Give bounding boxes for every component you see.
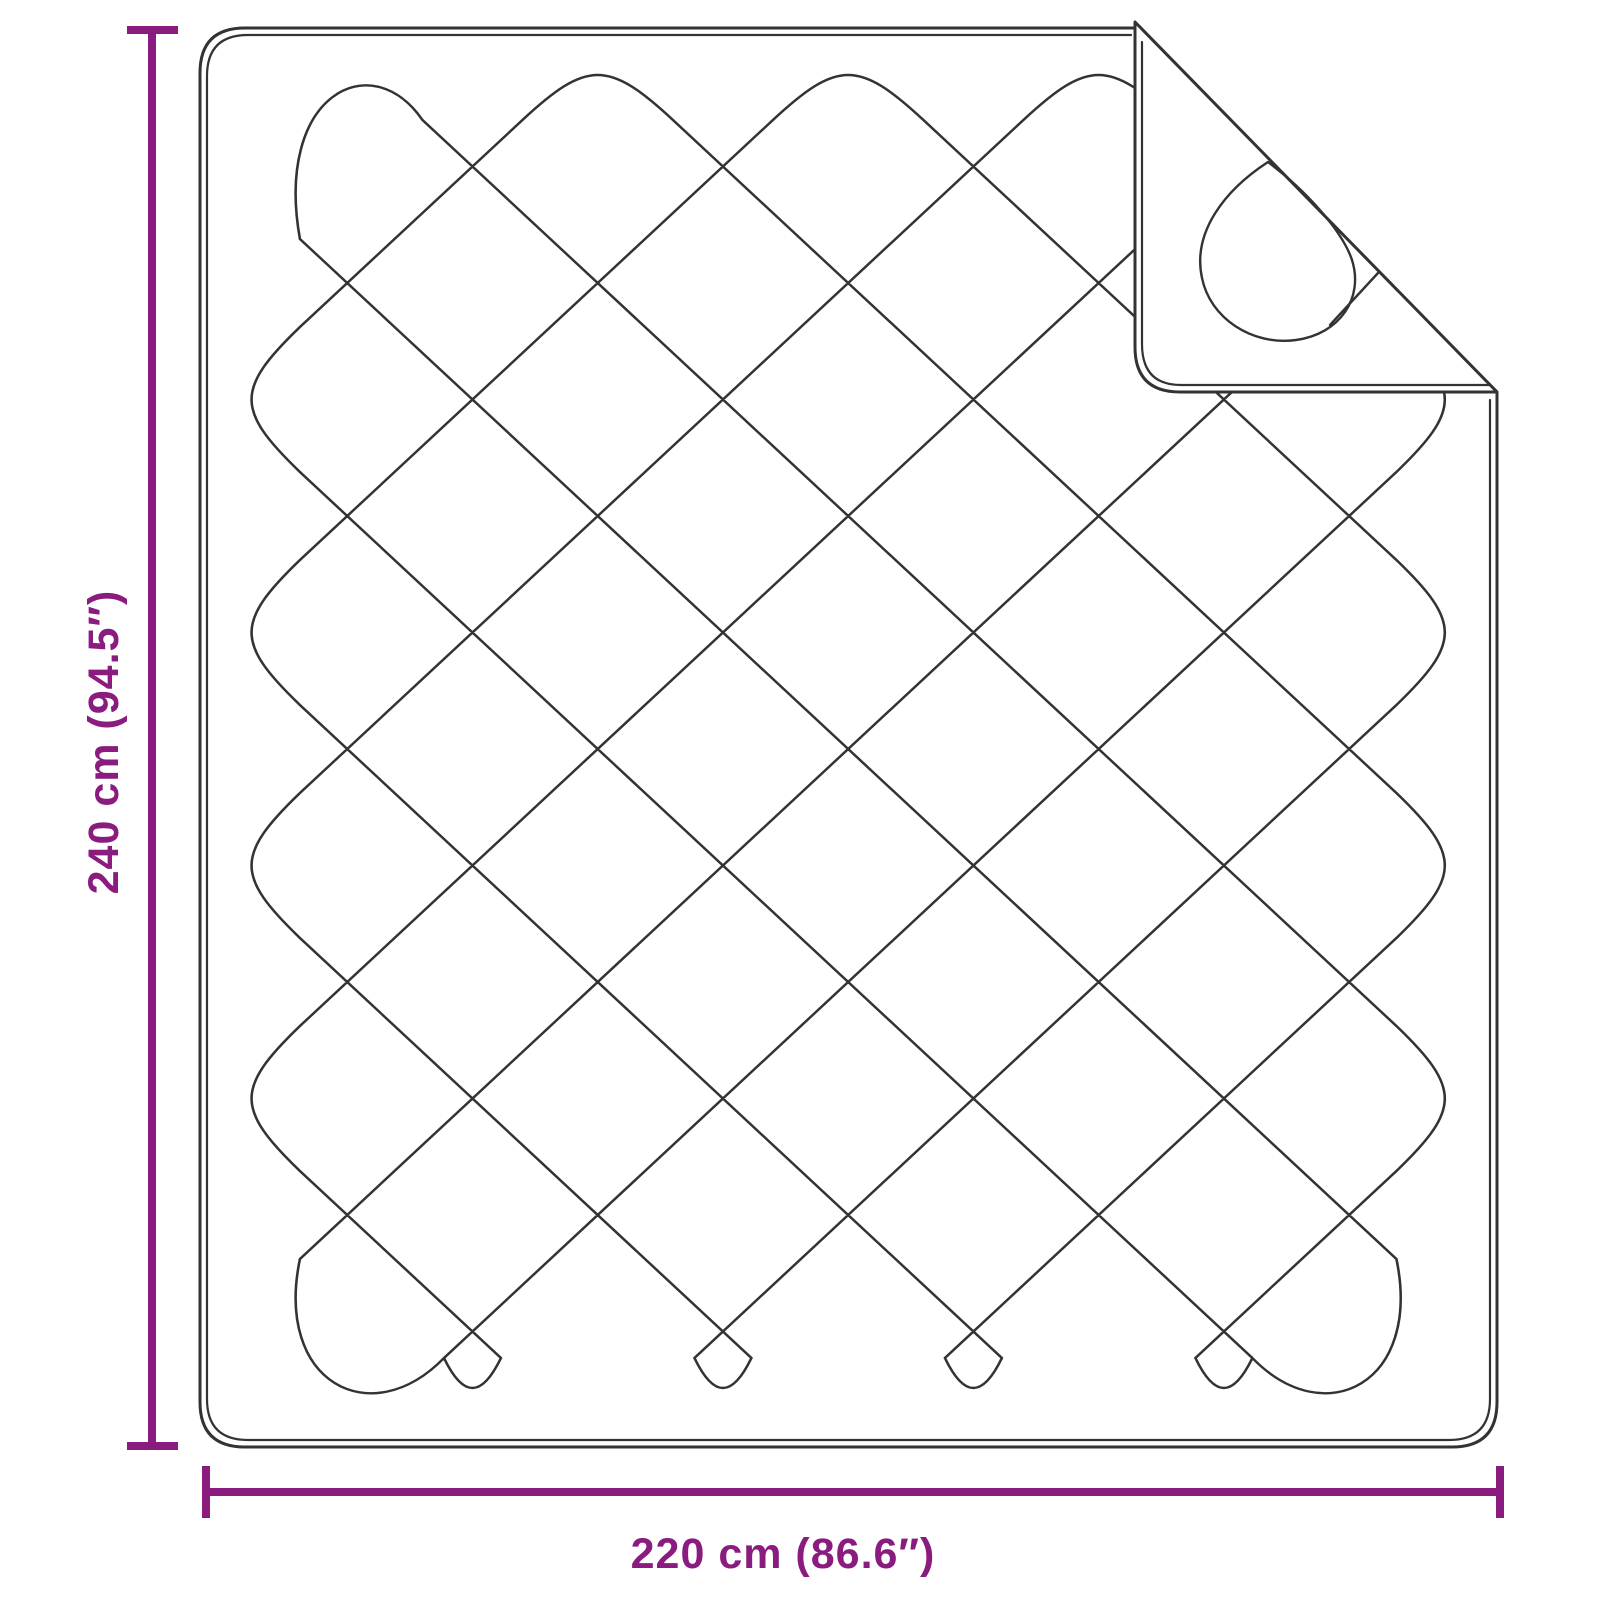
height-dimension-label: 240 cm (94.5″): [80, 590, 128, 895]
width-dimension-label: 220 cm (86.6″): [631, 1530, 936, 1578]
blanket: [200, 22, 1497, 1447]
diagram-svg: 240 cm (94.5″) 220 cm (86.6″): [0, 0, 1600, 1600]
product-dimension-diagram: 240 cm (94.5″) 220 cm (86.6″): [0, 0, 1600, 1600]
